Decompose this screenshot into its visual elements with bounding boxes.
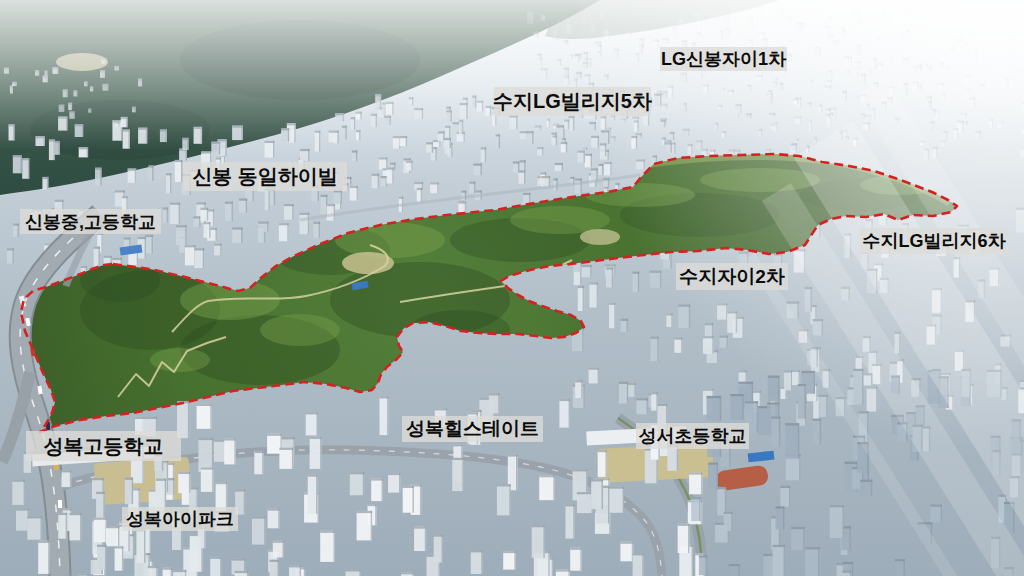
map-label-text: 수지LG빌리지6차 [862,229,1005,253]
map-label-text: 성서초등학교 [639,424,747,448]
map-label-sinbong-schools: 신봉중,고등학교 [20,209,161,234]
map-label-seongbok-ipark: 성복아이파크 [122,507,238,531]
map-label-text: 성복아이파크 [126,507,234,531]
map-label-text: LG신봉자이1차 [661,47,786,71]
map-label-text: 성복고등학교 [44,433,164,460]
map-label-text: 수지자이2차 [679,264,785,290]
map-label-seongseo-elementary: 성서초등학교 [636,423,749,449]
map-label-text: 성복힐스테이트 [406,416,539,442]
map-label-text: 수지LG빌리지5차 [493,88,652,115]
map-label-text: 신봉 동일하이빌 [192,163,338,190]
aerial-photo: LG신봉자이1차 수지LG빌리지5차 신봉 동일하이빌 신봉중,고등학교 수지L… [0,0,1024,576]
map-label-suji-lg-village5: 수지LG빌리지5차 [494,87,651,116]
map-label-suji-xi2: 수지자이2차 [676,263,788,290]
map-label-lg-sinbong-xi1: LG신봉자이1차 [660,47,787,71]
map-label-suji-lg-village6: 수지LG빌리지6차 [860,228,1008,254]
forest-clearing [580,229,620,245]
map-label-seongbok-hillstate: 성복힐스테이트 [402,416,543,442]
map-label-seongbok-high-school: 성복고등학교 [26,431,181,461]
map-label-text: 신봉중,고등학교 [25,210,156,234]
map-label-sinbong-dongil-hivill: 신봉 동일하이빌 [183,162,347,191]
